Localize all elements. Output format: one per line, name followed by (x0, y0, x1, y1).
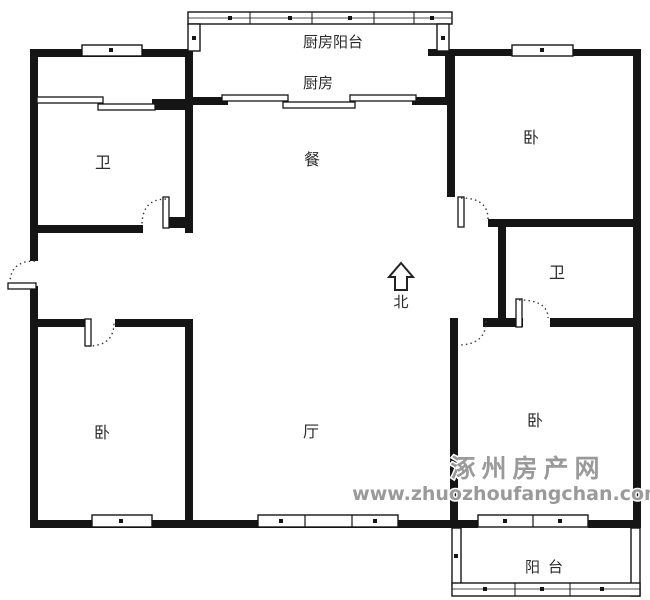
door-arc-bath-right (519, 300, 548, 318)
door-arc-bedroom-top-right (461, 198, 488, 219)
door-leaf-bath-right (516, 299, 522, 327)
floor-plan: 北 厨房阳台 厨房 卧 卫 餐 卫 卧 厅 卧 阳台 涿州房产网 www.zhu… (0, 0, 650, 600)
door-arc-bedroom-bottom-right (458, 321, 486, 345)
room-label-living: 厅 (303, 422, 319, 441)
door-leaf-bath-left (163, 197, 169, 228)
room-label-kitchen: 厨房 (303, 74, 333, 92)
room-label-bedroom-top-right: 卧 (523, 128, 539, 147)
floor-plan-canvas: 北 厨房阳台 厨房 卧 卫 餐 卫 卧 厅 卧 阳台 涿州房产网 www.zhu… (0, 0, 650, 600)
door-leaf-bedroom-top-right (458, 197, 464, 227)
door-arc-entrance (10, 261, 35, 283)
north-compass: 北 (389, 263, 413, 311)
room-label-bath-right: 卫 (549, 263, 565, 282)
room-label-dining: 餐 (304, 150, 320, 169)
watermark-site-name: 涿州房产网 (450, 454, 605, 483)
room-label-bath-left: 卫 (95, 153, 111, 172)
room-label-balcony: 阳台 (525, 558, 571, 576)
room-label-bedroom-bottom-right: 卧 (527, 411, 543, 430)
door-leaf-bedroom-bottom-left (85, 319, 91, 346)
partitions-and-door-leaves (8, 95, 522, 346)
door-arc-bedroom-bottom-left (88, 323, 114, 346)
room-label-bedroom-bottom-left: 卧 (94, 423, 110, 442)
door-leaf-entrance (8, 283, 36, 289)
watermark-site-url: www.zhuozhoufangchan.com (352, 483, 650, 505)
watermark: 涿州房产网 www.zhuozhoufangchan.com (352, 454, 650, 505)
north-arrow-icon (389, 263, 413, 290)
north-label: 北 (393, 293, 408, 311)
room-label-kitchen-balcony: 厨房阳台 (303, 33, 363, 51)
